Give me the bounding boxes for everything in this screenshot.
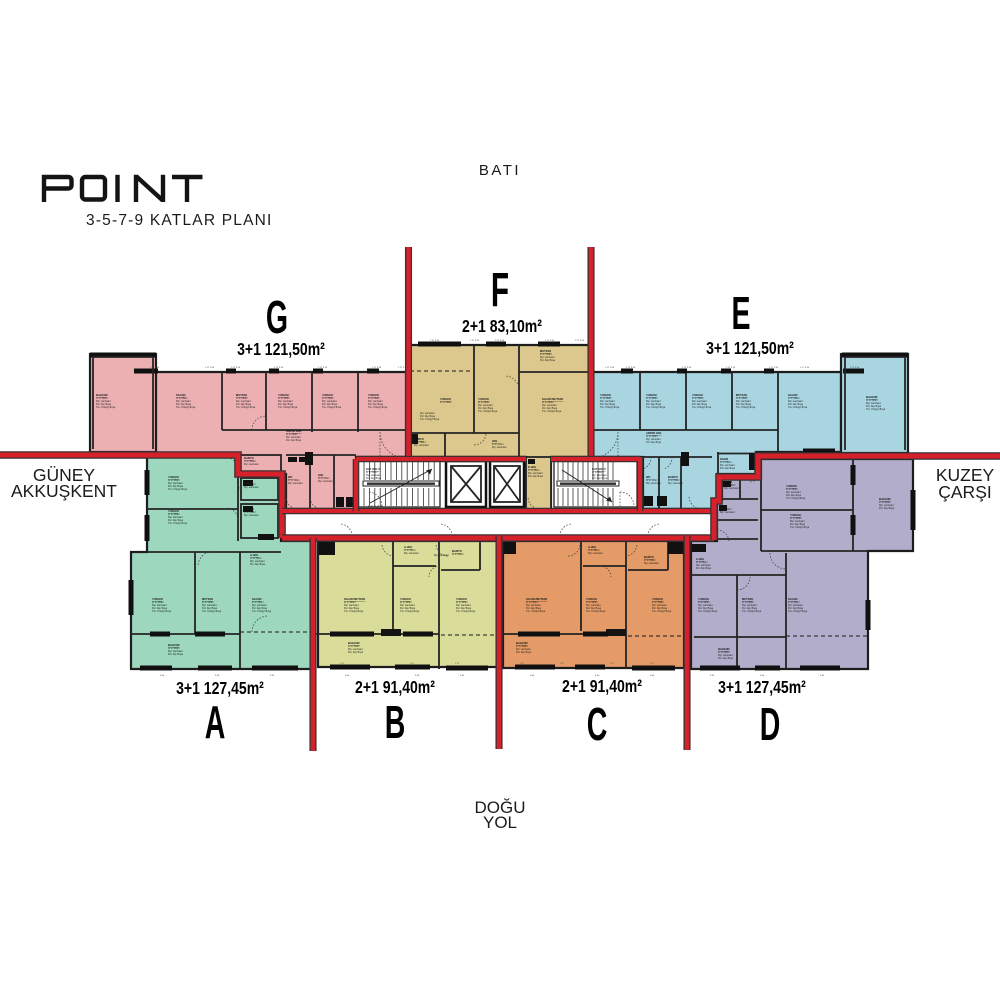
svg-text:Tvn: Krtnpyr Boya: Tvn: Krtnpyr Boya bbox=[736, 406, 756, 409]
svg-text:Tvn: Krtnpyr Boya: Tvn: Krtnpyr Boya bbox=[698, 610, 718, 613]
svg-text:1.17 3.50: 1.17 3.50 bbox=[430, 340, 440, 342]
svg-text:1.17 3.50: 1.17 3.50 bbox=[150, 367, 160, 369]
svg-text:1.17 3.50: 1.17 3.50 bbox=[769, 367, 779, 369]
svg-text:3+1 121,50m²: 3+1 121,50m² bbox=[237, 339, 325, 359]
svg-text:1.17 3.50: 1.17 3.50 bbox=[205, 367, 215, 369]
svg-text:Tvn: Krtnpyr Boya: Tvn: Krtnpyr Boya bbox=[742, 610, 762, 613]
svg-text:Dvr: Alçı Boya: Dvr: Alçı Boya bbox=[540, 359, 556, 362]
svg-text:B: B bbox=[385, 697, 406, 749]
svg-text:Tvn: Krtnpyr Boya: Tvn: Krtnpyr Boya bbox=[646, 406, 666, 409]
svg-text:Dly: Laminant: Dly: Laminant bbox=[404, 552, 419, 555]
svg-text:Dvr: Alçı Boya: Dvr: Alçı Boya bbox=[516, 651, 532, 654]
svg-text:Tvn: Krtnpyr Boya: Tvn: Krtnpyr Boya bbox=[236, 406, 256, 409]
svg-text:Dvr: Alçı Boya: Dvr: Alçı Boya bbox=[720, 467, 736, 470]
svg-text:Dly: Laminant: Dly: Laminant bbox=[646, 482, 661, 485]
svg-text:2+1 91,40m²: 2+1 91,40m² bbox=[562, 676, 642, 696]
svg-text:Tvn: Krtnpyr Boya: Tvn: Krtnpyr Boya bbox=[344, 610, 364, 613]
svg-text:1.17 3.50: 1.17 3.50 bbox=[682, 367, 692, 369]
svg-text:Tvn: Krtnpyr Boya: Tvn: Krtnpyr Boya bbox=[586, 610, 606, 613]
svg-text:G: G bbox=[266, 292, 288, 344]
svg-text:D: D bbox=[760, 699, 781, 751]
svg-text:Dly: Laminant: Dly: Laminant bbox=[668, 482, 683, 485]
svg-text:1.17 3.50: 1.17 3.50 bbox=[575, 340, 585, 342]
svg-text:A: 17,80m²: A: 17,80m² bbox=[452, 553, 464, 556]
svg-text:Dly: Laminant: Dly: Laminant bbox=[244, 486, 259, 489]
svg-text:1.17 3.50: 1.17 3.50 bbox=[726, 367, 736, 369]
svg-text:Tvn: Krtnpyr Boya: Tvn: Krtnpyr Boya bbox=[152, 610, 172, 613]
svg-text:Tvn: Krtnpyr Boya: Tvn: Krtnpyr Boya bbox=[478, 410, 498, 413]
svg-text:1.17 3.50: 1.17 3.50 bbox=[495, 340, 505, 342]
svg-text:C: C bbox=[587, 699, 608, 751]
svg-text:ÇARŞI: ÇARŞI bbox=[938, 482, 991, 502]
svg-text:AKKUŞKENT: AKKUŞKENT bbox=[11, 481, 117, 501]
svg-text:Tvn: Krtnpyr Boya: Tvn: Krtnpyr Boya bbox=[368, 406, 388, 409]
svg-text:Tvn: Krtnpyr Boya: Tvn: Krtnpyr Boya bbox=[652, 610, 672, 613]
svg-text:Tvn: Krtnpyr Boya: Tvn: Krtnpyr Boya bbox=[400, 610, 420, 613]
svg-text:Dvr: Alçı Boya: Dvr: Alçı Boya bbox=[528, 475, 544, 478]
svg-text:Tvn: Krtnpyr Boya: Tvn: Krtnpyr Boya bbox=[202, 610, 222, 613]
svg-text:1.17 3.50: 1.17 3.50 bbox=[850, 367, 860, 369]
svg-text:BATI: BATI bbox=[479, 162, 521, 179]
svg-text:Tvn: Krtnpyr Boya: Tvn: Krtnpyr Boya bbox=[252, 610, 272, 613]
svg-text:Dvr: Alçı Boya: Dvr: Alçı Boya bbox=[718, 657, 734, 660]
svg-text:Tvn: Krtnpyr Boya: Tvn: Krtnpyr Boya bbox=[542, 410, 562, 413]
svg-text:Dly: Laminant: Dly: Laminant bbox=[244, 463, 259, 466]
svg-text:1.17 3.50: 1.17 3.50 bbox=[545, 340, 555, 342]
svg-text:Dly: Laminant: Dly: Laminant bbox=[434, 554, 449, 557]
svg-text:Dly: Laminant: Dly: Laminant bbox=[244, 514, 259, 517]
svg-text:Dly: Laminant: Dly: Laminant bbox=[492, 446, 507, 449]
svg-text:Dvr: Alçı Boya: Dvr: Alçı Boya bbox=[250, 563, 266, 566]
svg-text:Tvn: Krtnpyr Boya: Tvn: Krtnpyr Boya bbox=[168, 522, 188, 525]
svg-text:3+1 127,45m²: 3+1 127,45m² bbox=[176, 678, 264, 698]
svg-text:Tvn: Krtnpyr Boya: Tvn: Krtnpyr Boya bbox=[456, 610, 476, 613]
svg-text:1.17 3.50: 1.17 3.50 bbox=[231, 367, 241, 369]
svg-text:Tvn: Krtnpyr Boya: Tvn: Krtnpyr Boya bbox=[322, 406, 342, 409]
svg-text:1.17 3.50: 1.17 3.50 bbox=[470, 340, 480, 342]
svg-text:Dly: Laminant: Dly: Laminant bbox=[644, 562, 659, 565]
svg-text:Dly: Laminant: Dly: Laminant bbox=[724, 487, 739, 490]
svg-text:1.17 3.50: 1.17 3.50 bbox=[800, 367, 810, 369]
svg-text:Tvn: Krtnpyr Boya: Tvn: Krtnpyr Boya bbox=[96, 406, 116, 409]
svg-text:Dvr: Alçı Boya: Dvr: Alçı Boya bbox=[646, 441, 662, 444]
svg-text:Dly: Laminant: Dly: Laminant bbox=[720, 511, 735, 514]
svg-text:Dly: Laminant: Dly: Laminant bbox=[588, 552, 603, 555]
svg-text:2+1 83,10m²: 2+1 83,10m² bbox=[462, 316, 542, 336]
svg-text:Dvr: Alçı Boya: Dvr: Alçı Boya bbox=[696, 567, 712, 570]
svg-text:Tvn: Krtnpyr Boya: Tvn: Krtnpyr Boya bbox=[866, 408, 886, 411]
svg-text:Dvr: Alçı Boya: Dvr: Alçı Boya bbox=[168, 653, 184, 656]
svg-text:3+1 127,45m²: 3+1 127,45m² bbox=[718, 677, 806, 697]
svg-text:1.17 3.50: 1.17 3.50 bbox=[318, 367, 328, 369]
svg-text:Dvr: Alçı Boya: Dvr: Alçı Boya bbox=[366, 477, 382, 480]
svg-text:1.17 3.50: 1.17 3.50 bbox=[626, 367, 636, 369]
svg-text:Dvr: Alçı Boya: Dvr: Alçı Boya bbox=[592, 477, 608, 480]
svg-text:Tvn: Krtnpyr Boya: Tvn: Krtnpyr Boya bbox=[176, 406, 196, 409]
svg-text:Tvn: Krtnpyr Boya: Tvn: Krtnpyr Boya bbox=[788, 610, 808, 613]
svg-text:F: F bbox=[491, 264, 509, 317]
svg-text:Dly: Laminant: Dly: Laminant bbox=[414, 444, 429, 447]
svg-text:Tvn: Krtnpyr Boya: Tvn: Krtnpyr Boya bbox=[420, 418, 440, 421]
svg-text:YOL: YOL bbox=[483, 813, 517, 832]
svg-text:3-5-7-9 KATLAR PLANI: 3-5-7-9 KATLAR PLANI bbox=[86, 212, 273, 229]
svg-text:1.17 3.50: 1.17 3.50 bbox=[605, 367, 615, 369]
svg-text:Tvn: Krtnpyr Boya: Tvn: Krtnpyr Boya bbox=[600, 406, 620, 409]
svg-text:Tvn: Krtnpyr Boya: Tvn: Krtnpyr Boya bbox=[692, 406, 712, 409]
svg-text:Dly: Laminant: Dly: Laminant bbox=[288, 482, 303, 485]
svg-text:A: A bbox=[205, 697, 226, 749]
svg-text:Dly: Laminant: Dly: Laminant bbox=[318, 480, 333, 483]
svg-text:Tvn: Krtnpyr Boya: Tvn: Krtnpyr Boya bbox=[788, 406, 808, 409]
svg-text:2+1 91,40m²: 2+1 91,40m² bbox=[355, 677, 435, 697]
svg-text:Dvr: Alçı Boya: Dvr: Alçı Boya bbox=[879, 507, 895, 510]
svg-text:3+1 121,50m²: 3+1 121,50m² bbox=[706, 338, 794, 358]
svg-text:Tvn: Krtnpyr Boya: Tvn: Krtnpyr Boya bbox=[278, 406, 298, 409]
svg-text:1.17 3.50: 1.17 3.50 bbox=[274, 367, 284, 369]
svg-text:A: 17,80m²: A: 17,80m² bbox=[440, 401, 452, 404]
svg-text:E: E bbox=[731, 288, 750, 340]
svg-text:Dvr: Alçı Boya: Dvr: Alçı Boya bbox=[286, 439, 302, 442]
svg-text:Tvn: Krtnpyr Boya: Tvn: Krtnpyr Boya bbox=[790, 526, 810, 529]
svg-text:1.17 3.50: 1.17 3.50 bbox=[372, 367, 382, 369]
svg-text:Dvr: Alçı Boya: Dvr: Alçı Boya bbox=[348, 651, 364, 654]
svg-text:Tvn: Krtnpyr Boya: Tvn: Krtnpyr Boya bbox=[786, 497, 806, 500]
svg-text:Tvn: Krtnpyr Boya: Tvn: Krtnpyr Boya bbox=[168, 488, 188, 491]
svg-text:Tvn: Krtnpyr Boya: Tvn: Krtnpyr Boya bbox=[526, 610, 546, 613]
